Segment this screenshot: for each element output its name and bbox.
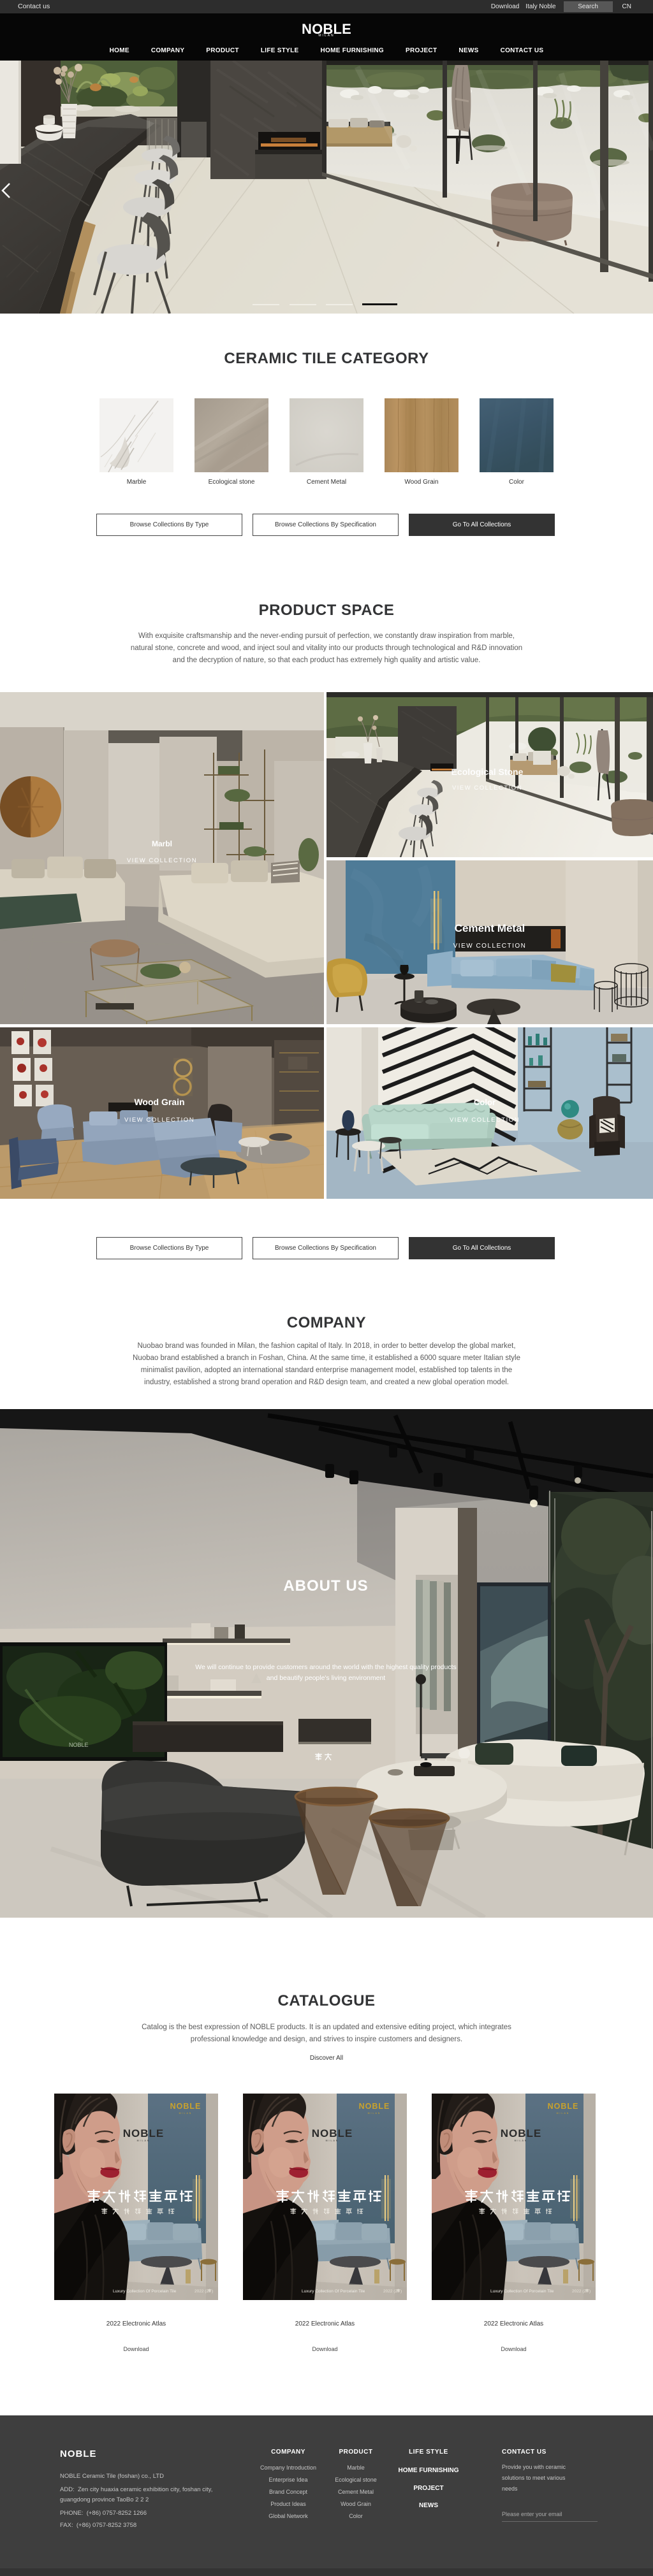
svg-text:VIEW COLLECTION: VIEW COLLECTION: [127, 857, 197, 864]
svg-text:MILAN: MILAN: [368, 2112, 381, 2115]
svg-text:Cement Metal: Cement Metal: [455, 922, 525, 934]
svg-text:): ): [400, 2289, 402, 2294]
svg-text:ABOUT US: ABOUT US: [283, 1577, 368, 1595]
svg-text:Ecological Stone: Ecological Stone: [451, 767, 524, 777]
svg-text:MILAN: MILAN: [515, 2139, 528, 2142]
svg-text:VIEW COLLECTION: VIEW COLLECTION: [124, 1117, 194, 1124]
svg-text:NOBLE: NOBLE: [548, 2102, 579, 2111]
svg-text:2022 (2: 2022 (2: [572, 2289, 586, 2294]
svg-text:NOBLE: NOBLE: [359, 2102, 390, 2111]
svg-text:NOBLE: NOBLE: [501, 2127, 542, 2139]
svg-text:VIEW COLLECTION: VIEW COLLECTION: [453, 943, 527, 950]
svg-text:Luxury Collection Of Porcelain: Luxury Collection Of Porcelain Tile: [302, 2289, 365, 2294]
svg-text:NOBLE: NOBLE: [123, 2127, 165, 2139]
svg-text:and beautify people's living e: and beautify people's living environment: [267, 1674, 386, 1682]
svg-text:Color: Color: [474, 1097, 495, 1107]
svg-text:VIEW COLLECTION: VIEW COLLECTION: [450, 1117, 520, 1124]
svg-text:NOBLE: NOBLE: [69, 1742, 89, 1748]
svg-text:MILAN: MILAN: [137, 2139, 150, 2142]
svg-text:2022 (2: 2022 (2: [383, 2289, 397, 2294]
svg-text:): ): [589, 2289, 591, 2294]
svg-text:We will continue to provide cu: We will continue to provide customers ar…: [195, 1663, 457, 1671]
svg-text:VIEW COLLECTION: VIEW COLLECTION: [452, 785, 522, 792]
svg-text:Luxury Collection Of Porcelain: Luxury Collection Of Porcelain Tile: [490, 2289, 554, 2294]
svg-text:MILAN: MILAN: [557, 2112, 570, 2115]
svg-text:2022 (2: 2022 (2: [194, 2289, 209, 2294]
svg-text:Luxury Collection Of Porcelain: Luxury Collection Of Porcelain Tile: [113, 2289, 177, 2294]
svg-text:NOBLE: NOBLE: [170, 2102, 202, 2111]
svg-text:Marbl: Marbl: [152, 839, 172, 848]
svg-text:NOBLE: NOBLE: [312, 2127, 353, 2139]
svg-text:MILAN: MILAN: [326, 2139, 339, 2142]
svg-text:Wood Grain: Wood Grain: [134, 1097, 184, 1107]
svg-text:MILAN: MILAN: [179, 2112, 193, 2115]
svg-text:): ): [212, 2289, 213, 2294]
